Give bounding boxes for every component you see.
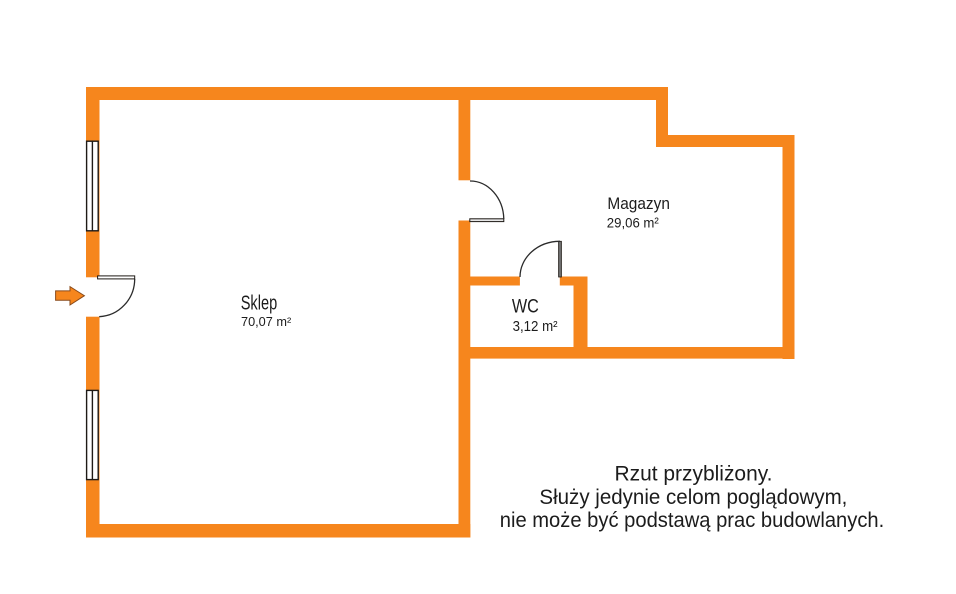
svg-text:nie może być podstawą prac bud: nie może być podstawą prac budowlanych. [500, 509, 885, 532]
svg-text:70,07 m²: 70,07 m² [241, 314, 292, 329]
svg-text:Rzut przybliżony.: Rzut przybliżony. [615, 463, 773, 486]
svg-text:Magazyn: Magazyn [607, 194, 670, 213]
svg-text:3,12 m²: 3,12 m² [513, 319, 558, 335]
svg-text:Sklep: Sklep [241, 293, 278, 315]
svg-text:29,06 m²: 29,06 m² [607, 216, 659, 232]
svg-text:WC: WC [512, 295, 539, 317]
svg-text:Służy jedynie celom poglądowym: Służy jedynie celom poglądowym, [539, 486, 847, 509]
